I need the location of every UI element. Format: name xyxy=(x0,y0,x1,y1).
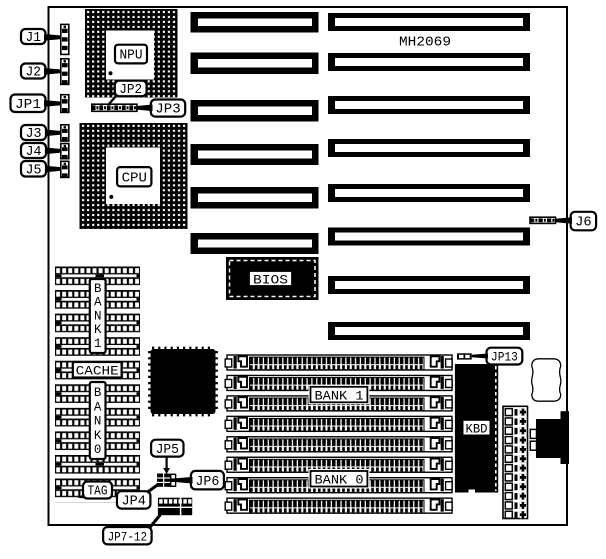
svg-text:JP2: JP2 xyxy=(119,82,142,98)
svg-text:J4: J4 xyxy=(26,144,42,160)
svg-text:MH2069: MH2069 xyxy=(399,34,451,50)
svg-text:K: K xyxy=(94,323,102,337)
svg-text:JP1: JP1 xyxy=(15,97,41,113)
svg-text:1: 1 xyxy=(94,337,102,351)
svg-text:N: N xyxy=(94,309,102,323)
svg-text:A: A xyxy=(94,400,102,414)
svg-text:J5: J5 xyxy=(26,162,42,178)
svg-text:JP3: JP3 xyxy=(155,102,180,118)
svg-text:K: K xyxy=(94,429,102,443)
svg-text:JP7-12: JP7-12 xyxy=(108,529,148,544)
svg-text:J1: J1 xyxy=(26,30,42,46)
svg-text:JP13: JP13 xyxy=(491,350,518,365)
svg-text:A: A xyxy=(94,296,102,310)
svg-text:J6: J6 xyxy=(575,215,592,231)
svg-text:JP4: JP4 xyxy=(122,494,146,510)
svg-text:JP6: JP6 xyxy=(195,474,219,490)
svg-text:CACHE: CACHE xyxy=(76,364,119,379)
svg-text:CPU: CPU xyxy=(122,170,147,186)
svg-text:BANK 1: BANK 1 xyxy=(315,388,364,403)
svg-text:KBD: KBD xyxy=(466,422,488,437)
svg-text:B: B xyxy=(94,282,102,296)
svg-text:BIOS: BIOS xyxy=(253,273,288,288)
svg-text:J2: J2 xyxy=(26,65,42,81)
svg-text:N: N xyxy=(94,415,102,429)
svg-text:J3: J3 xyxy=(26,126,42,142)
svg-text:0: 0 xyxy=(94,443,102,457)
svg-text:BANK 0: BANK 0 xyxy=(315,473,364,488)
svg-text:B: B xyxy=(94,386,102,400)
svg-text:TAG: TAG xyxy=(88,484,108,500)
svg-text:NPU: NPU xyxy=(120,48,143,64)
svg-text:JP5: JP5 xyxy=(156,442,179,458)
